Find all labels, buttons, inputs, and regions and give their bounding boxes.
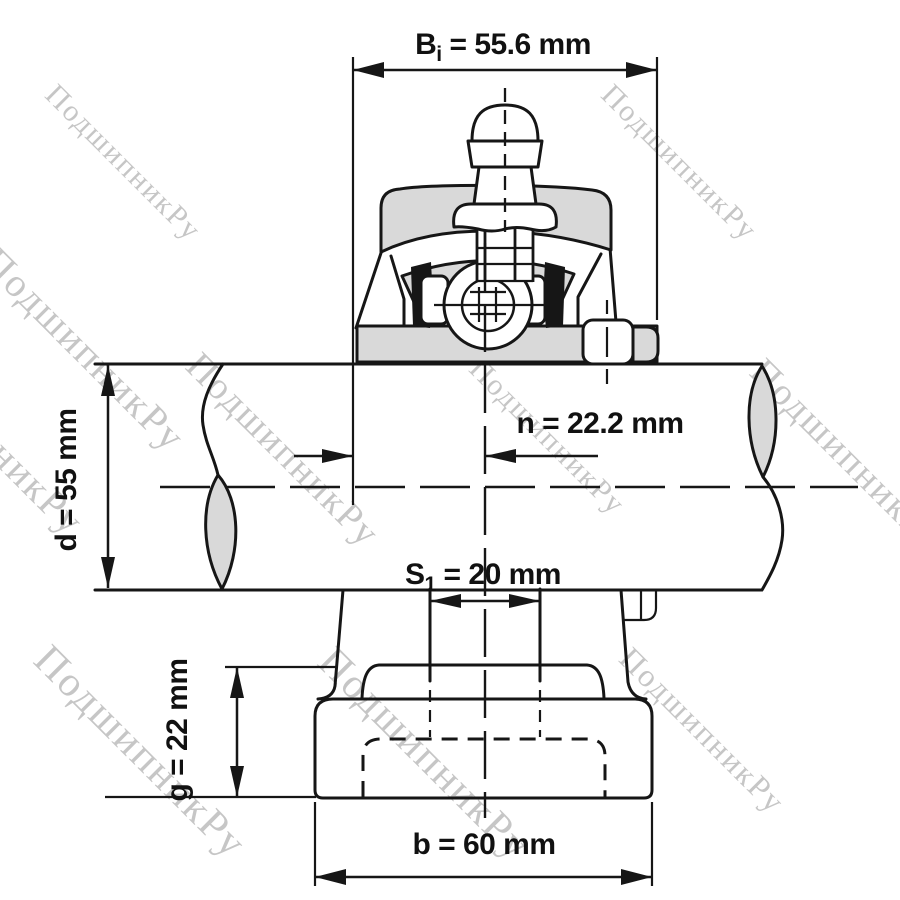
shaft-break-lens-left [206, 475, 236, 589]
pillow-block-bearing-drawing: Bi = 55.6 mm n = 22.2 mm d = 55 mm S1 = … [0, 0, 900, 900]
g-arrowhead-top [230, 667, 244, 698]
dimension-d: d = 55 mm [50, 365, 115, 588]
housing-right-outer-wall [610, 248, 616, 322]
shaft-break-curve-right [762, 477, 783, 590]
housing-base [315, 699, 652, 798]
dimension-s1: S1 = 20 mm [405, 558, 561, 608]
s1-arrowhead-right [509, 594, 540, 608]
s1-arrowhead-left [430, 594, 461, 608]
bi-dimension-label: Bi = 55.6 mm [415, 28, 591, 66]
n-arrowhead-left [322, 449, 353, 463]
housing-left-outer-wall [356, 250, 382, 328]
n-arrowhead-right [485, 449, 516, 463]
housing-left-inner-wall [391, 256, 404, 328]
housing-left-lower-wall [318, 590, 343, 699]
technical-drawing-page: ПодшипникРу ПодшипникРу ПодшипникРу Подш… [0, 0, 900, 900]
d-arrowhead-top [101, 365, 115, 396]
dimension-b: b = 60 mm [315, 802, 652, 886]
d-dimension-label: d = 55 mm [50, 408, 83, 551]
dimension-g: g = 22 mm [105, 658, 337, 801]
d-arrowhead-bottom [101, 557, 115, 588]
b-arrowhead-right [621, 869, 652, 885]
b-dimension-label: b = 60 mm [412, 828, 555, 861]
housing-right-inner-wall [578, 254, 601, 326]
g-dimension-label: g = 22 mm [161, 658, 194, 801]
s1-dimension-label: S1 = 20 mm [405, 558, 561, 596]
set-screw-collar-end [633, 327, 658, 362]
shaft-break-lens-right [749, 366, 776, 477]
housing-step [362, 665, 604, 698]
n-dimension-label: n = 22.2 mm [516, 407, 683, 440]
shaft-break-curve-left [202, 364, 223, 475]
housing-right-lower-wall [621, 590, 646, 699]
g-arrowhead-bottom [230, 766, 244, 797]
bi-arrowhead-right [626, 62, 657, 78]
housing-right-rib-corner [644, 590, 656, 620]
bi-arrowhead-left [353, 62, 384, 78]
shaft [95, 364, 783, 590]
b-arrowhead-left [315, 869, 346, 885]
